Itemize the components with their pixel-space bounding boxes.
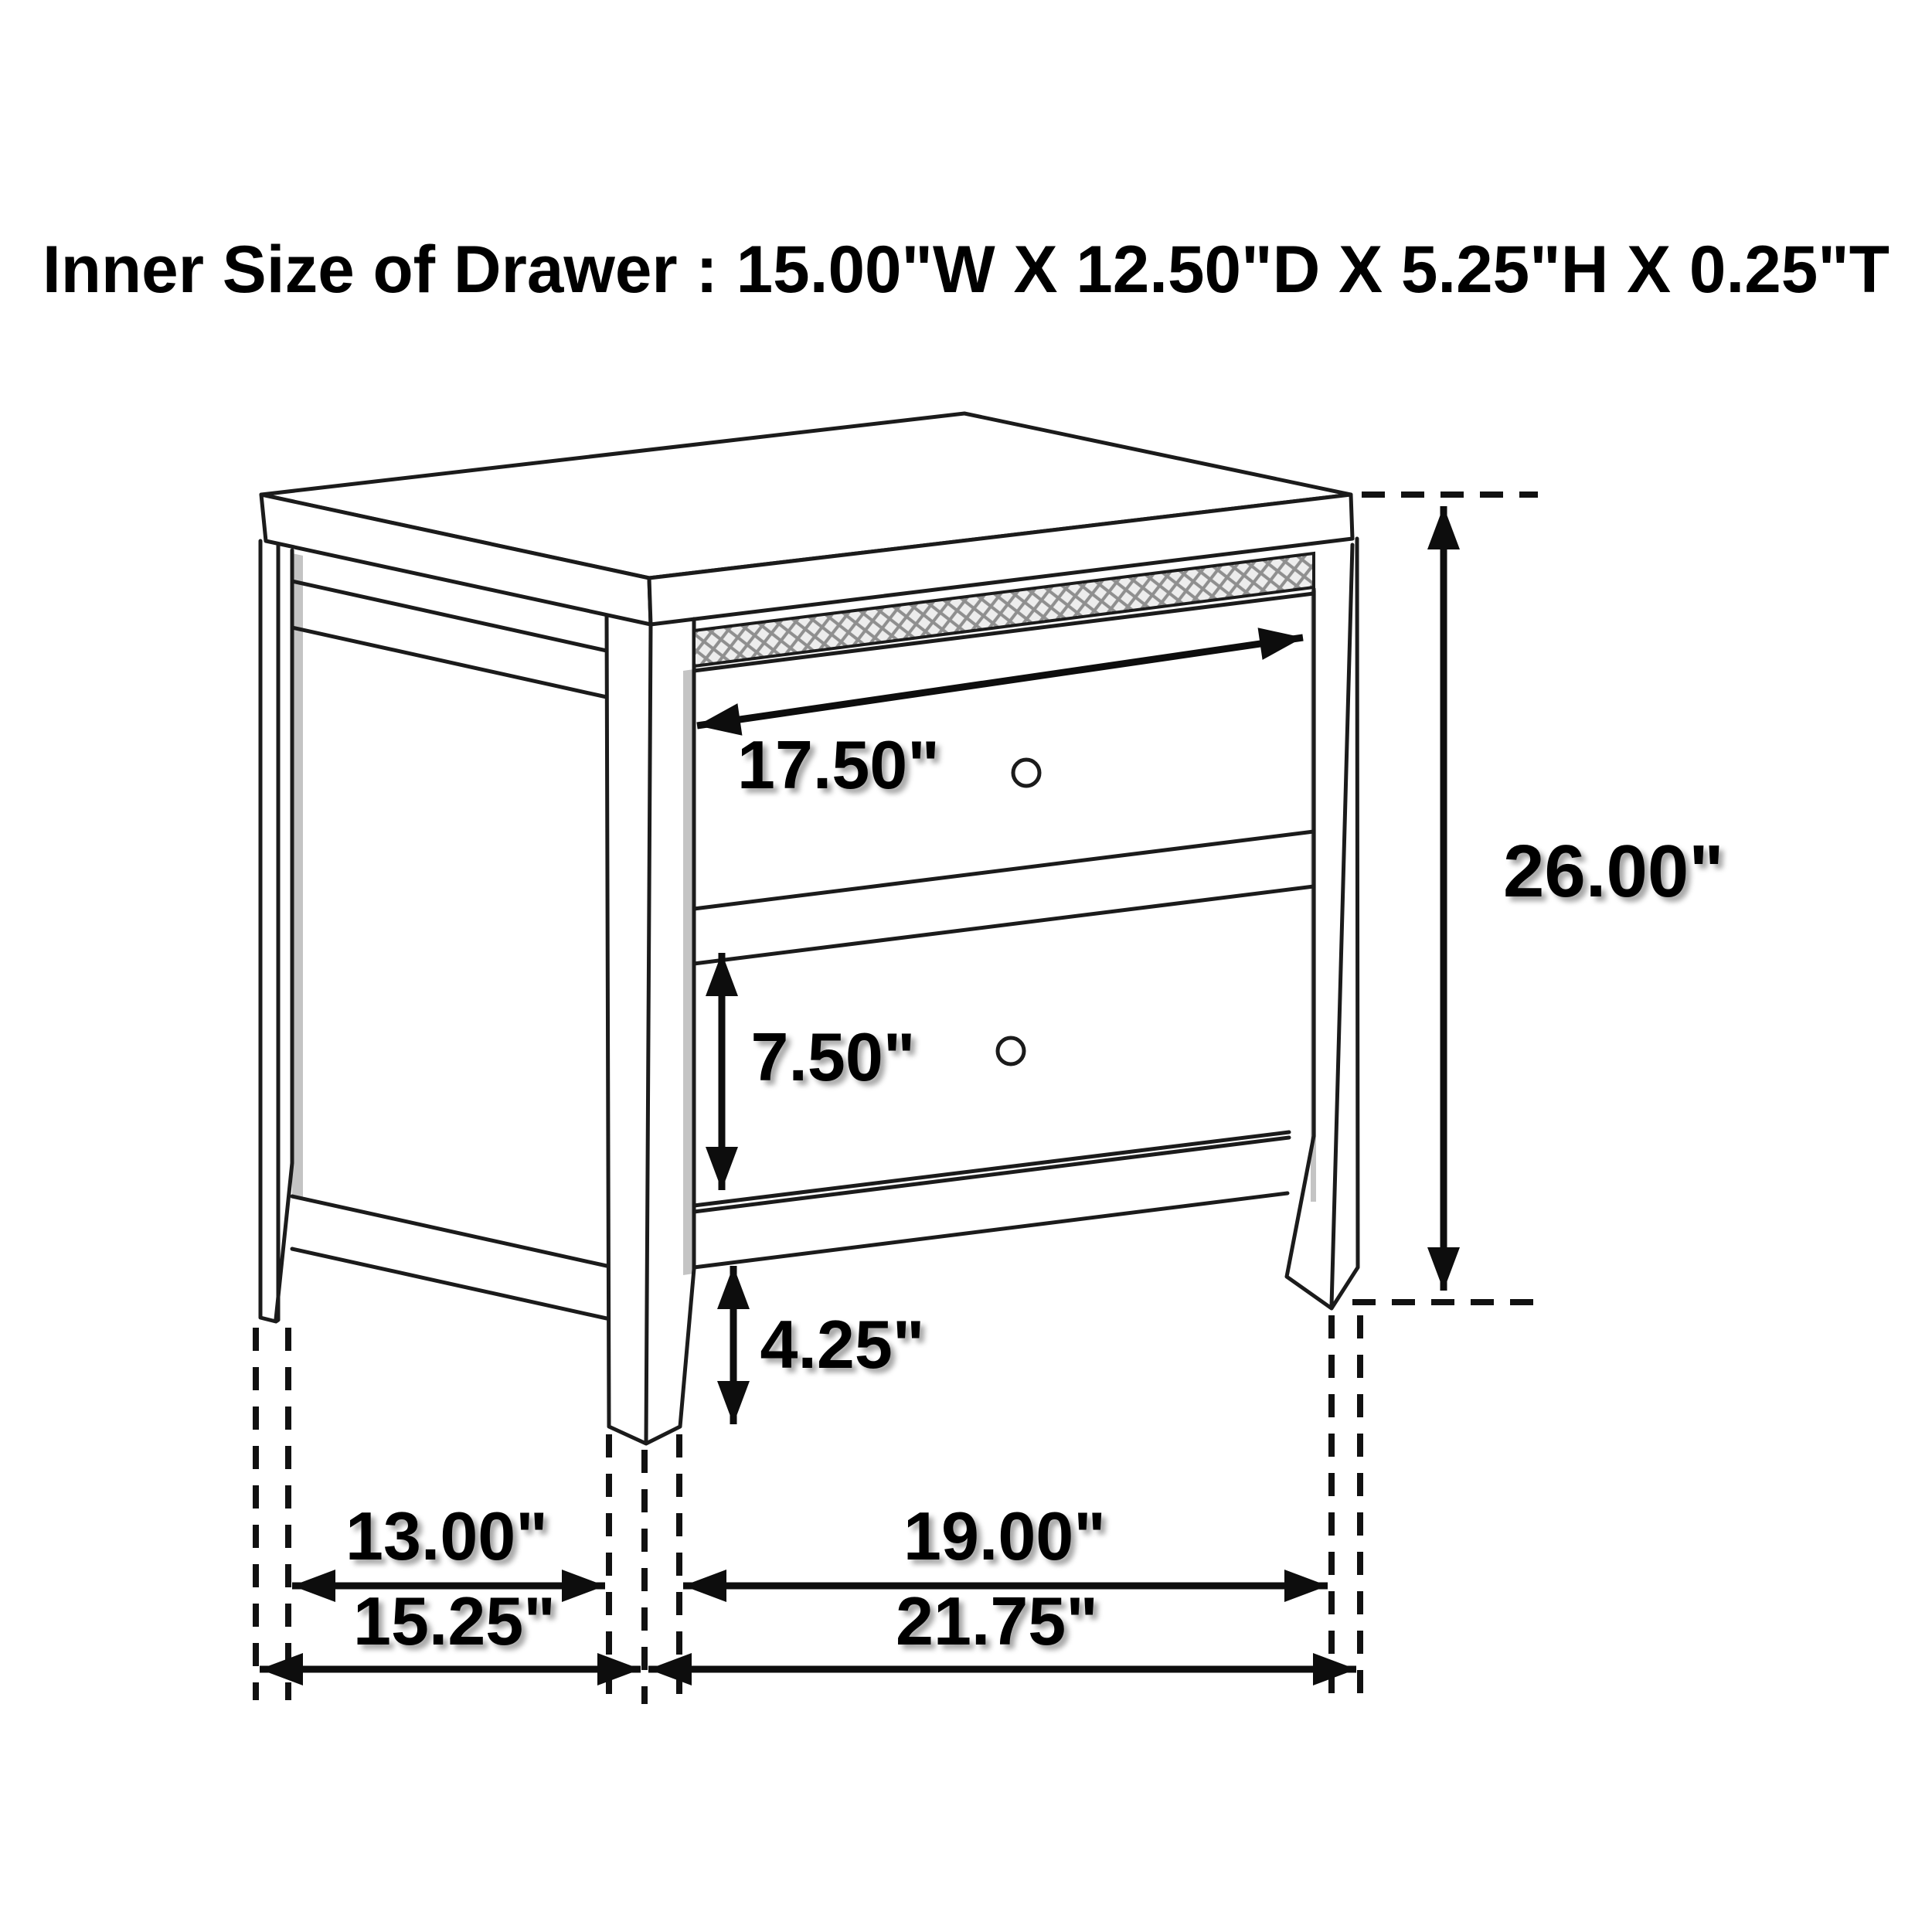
diagram-page: Inner Size of Drawer : 15.00"W X 12.50"D… <box>0 0 1932 1932</box>
nightstand-line-art <box>260 413 1358 1444</box>
dim-label-width-between-legs: 19.00" <box>903 1498 1106 1574</box>
dim-label-overall-depth: 15.25" <box>353 1583 556 1659</box>
bottom-drawer-knob <box>998 1038 1024 1064</box>
bottom-drawer-bottom-edge <box>694 1132 1289 1206</box>
front-right-leg <box>1287 539 1358 1308</box>
front-bottom-rail <box>694 1138 1289 1267</box>
nightstand-dimension-diagram: Inner Size of Drawer : 15.00"W X 12.50"D… <box>0 0 1932 1932</box>
side-panel-bottom-rail <box>292 1196 607 1318</box>
drawer-divider-rail <box>694 832 1314 964</box>
diagram-title: Inner Size of Drawer : 15.00"W X 12.50"D… <box>43 233 1889 307</box>
dim-label-drawer-opening-width: 17.50" <box>737 726 940 803</box>
dim-label-floor-clearance: 4.25" <box>760 1306 925 1383</box>
top-drawer-knob <box>1013 760 1039 786</box>
dim-label-overall-width: 21.75" <box>896 1583 1098 1659</box>
rear-left-leg <box>260 541 292 1321</box>
dim-label-overall-height: 26.00" <box>1503 830 1724 913</box>
front-left-leg <box>607 615 694 1444</box>
dim-label-drawer-front-height: 7.50" <box>751 1019 916 1095</box>
dim-label-depth-between-legs: 13.00" <box>345 1498 548 1574</box>
